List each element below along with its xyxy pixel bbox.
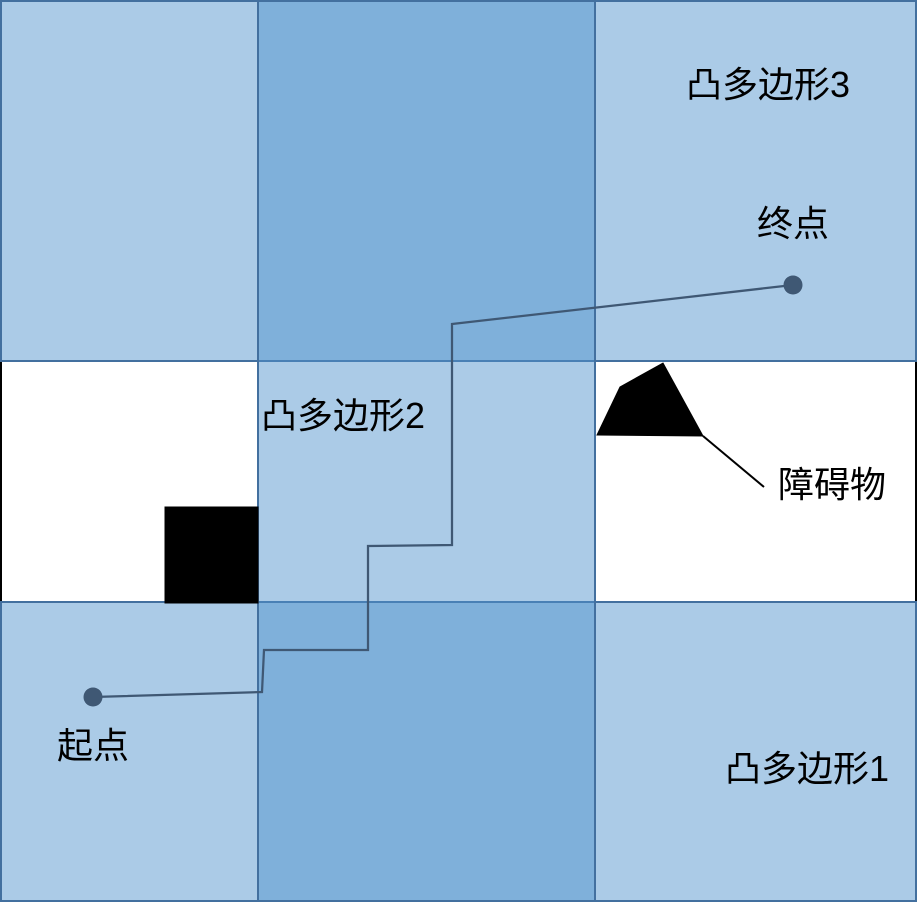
start-point-marker bbox=[84, 688, 103, 707]
planned-path-line bbox=[93, 285, 793, 697]
obstacle-square bbox=[165, 507, 258, 603]
polygon3-label: 凸多边形3 bbox=[686, 66, 850, 104]
start-point-label: 起点 bbox=[57, 727, 129, 765]
polygon2-label: 凸多边形2 bbox=[261, 397, 425, 435]
obstacle-leader-line bbox=[703, 436, 764, 487]
end-point-marker bbox=[784, 276, 803, 295]
end-point-label: 终点 bbox=[757, 205, 829, 243]
path-planning-diagram: 凸多边形3 终点 凸多边形2 障碍物 起点 凸多边形1 bbox=[0, 0, 917, 902]
obstacle-label: 障碍物 bbox=[778, 466, 886, 504]
obstacle-triangle bbox=[597, 363, 703, 436]
polygon1-label: 凸多边形1 bbox=[725, 750, 889, 788]
